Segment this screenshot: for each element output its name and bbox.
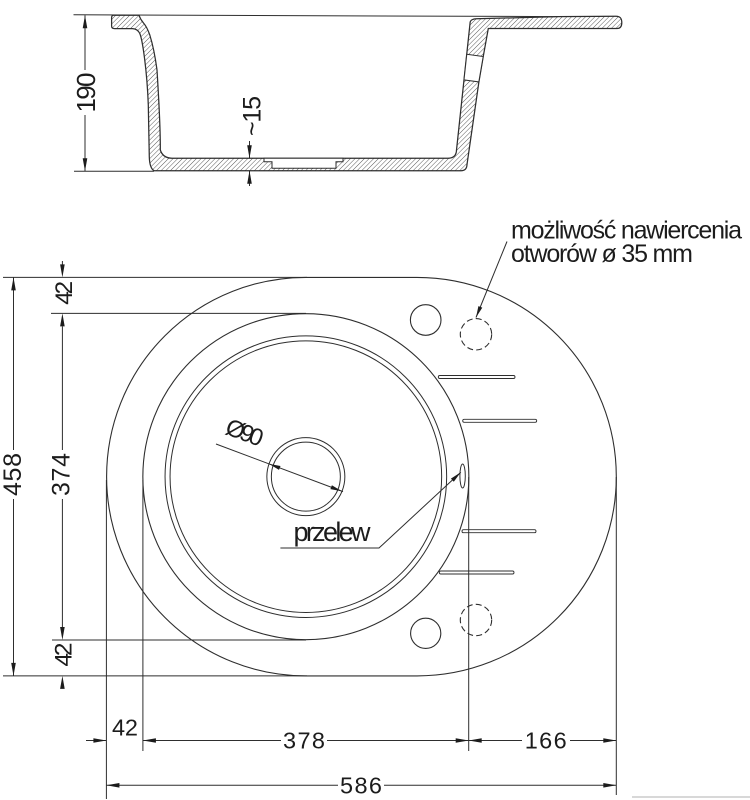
- svg-text:586: 586: [340, 772, 382, 798]
- svg-text:190: 190: [71, 73, 101, 113]
- svg-text:42: 42: [112, 715, 138, 741]
- svg-text:458: 458: [0, 453, 27, 496]
- svg-text:przelew: przelew: [294, 517, 372, 547]
- svg-text:378: 378: [283, 728, 325, 754]
- svg-text:42: 42: [51, 281, 78, 305]
- svg-text:374: 374: [48, 453, 76, 496]
- svg-text:166: 166: [525, 728, 567, 754]
- svg-text:Ø90: Ø90: [222, 414, 267, 453]
- svg-text:~15: ~15: [239, 96, 267, 136]
- svg-text:42: 42: [50, 643, 77, 667]
- svg-text:otworów ø 35 mm: otworów ø 35 mm: [511, 240, 693, 268]
